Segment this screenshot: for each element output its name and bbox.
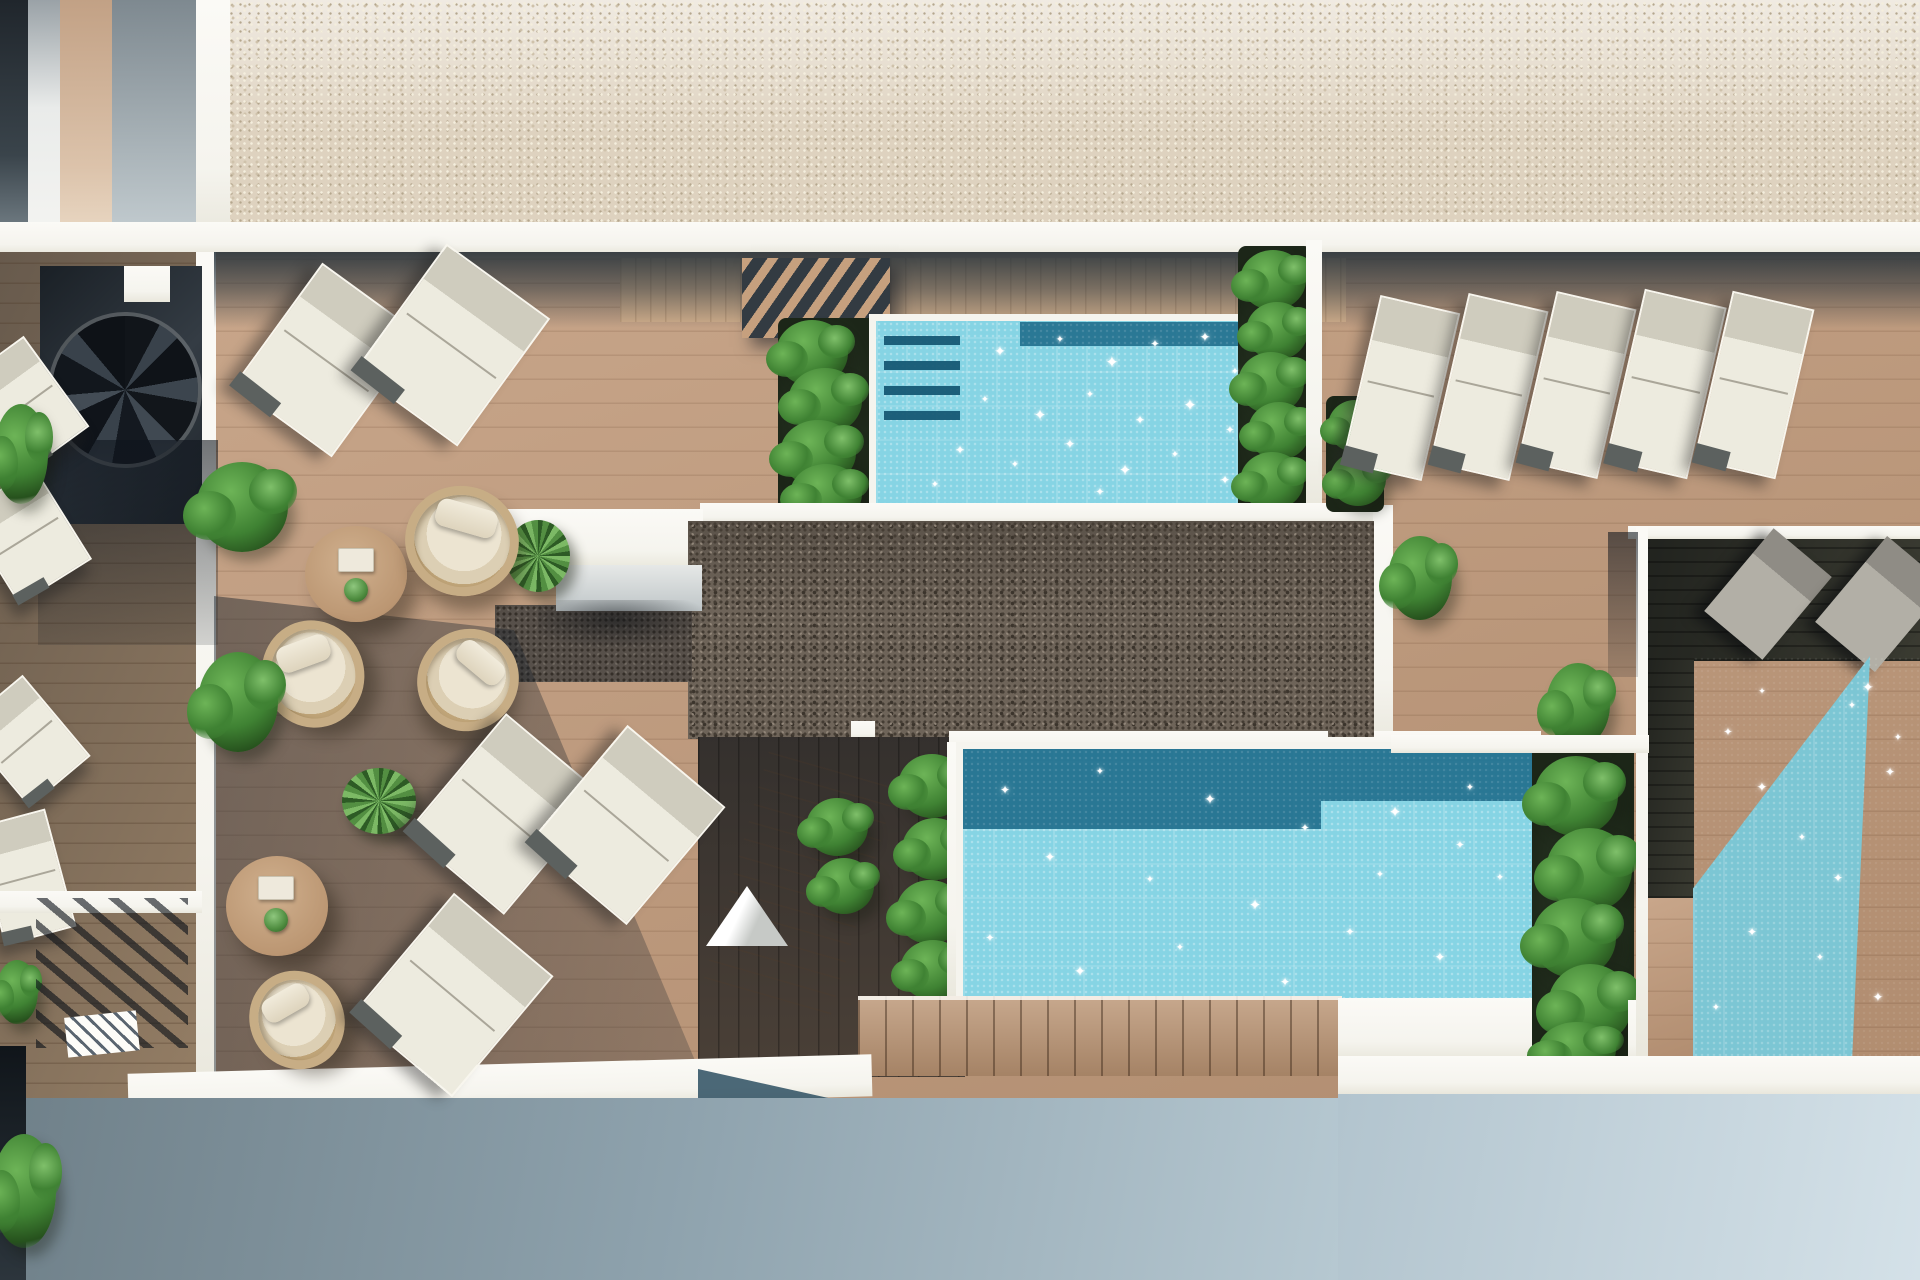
wall-right-of-top-pool [1306,240,1322,514]
left-light-panel [28,0,60,240]
deck-column-lit [1648,898,1694,1064]
table-plant [344,578,368,602]
round-table [226,856,328,956]
frame-shadow-wedge [1608,532,1638,677]
serving-tray [338,548,374,572]
top-pool-underwater-steps [884,336,960,434]
stair-railing [64,1010,140,1057]
roof-gravel-strip [227,0,1920,224]
left-white-panel [196,0,230,240]
left-wood-panel [60,0,112,240]
table-plant [264,908,288,932]
lower-facade-right [1338,1092,1920,1280]
white-edge-below-pool [700,503,1376,523]
hedge-blob [806,798,868,856]
top-parapet-wall [0,222,1920,254]
wall-right-of-gravel [1373,505,1393,753]
round-table [305,526,407,622]
serving-tray [258,876,294,900]
climber-blob [1240,250,1306,310]
agave-plant [342,768,416,834]
stair-white-notch [124,266,170,302]
bush-seating-area [196,462,288,552]
rooftop-terrace-render: ✦✦✦✦✦✦✦✦✦✦✦✦✦✦✦✦✦✦✦✦✦✦✦✦✦✦✦✦✦✦✦✦✦✦✦✦✦✦✦✦… [0,0,1920,1280]
dark-gravel-strip-right [1328,521,1374,737]
bottom-pool-shadow-a [963,749,1321,829]
bottom-pool-shadow-b [1321,749,1535,801]
climber-blob [1240,452,1304,510]
plant-blob [1534,756,1618,836]
climber-blob [1248,402,1310,460]
left-gray-panel [112,0,196,240]
hedge-blob [814,858,874,914]
bush-seating-area [198,652,278,752]
lower-white-wall-right [1338,1056,1920,1094]
top-pool-shadow-band [1020,322,1241,346]
skylight-box-shadow [538,600,710,648]
bottom-steps [858,996,1342,1076]
shaded-deck-column [1648,658,1694,898]
white-corner-right-of-steps [1338,998,1550,1060]
climber-blob [1246,302,1308,360]
white-edge-mid-right [1391,735,1649,753]
bush-right-deck [1388,536,1452,620]
dark-gravel-roof [688,521,1375,739]
